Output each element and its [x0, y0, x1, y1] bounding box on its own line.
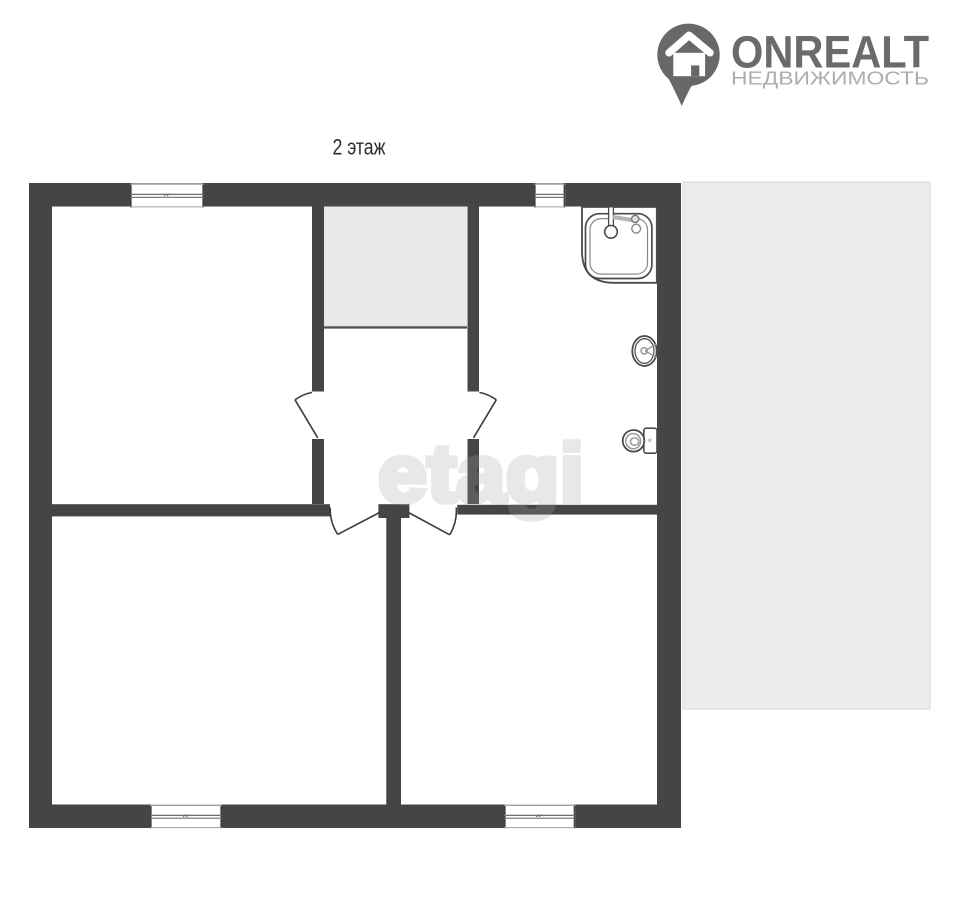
svg-text:etagi: etagi [378, 429, 584, 520]
svg-text:НЕДВИЖИМОСТЬ: НЕДВИЖИМОСТЬ [731, 67, 929, 88]
svg-text:2 этаж: 2 этаж [333, 135, 386, 160]
